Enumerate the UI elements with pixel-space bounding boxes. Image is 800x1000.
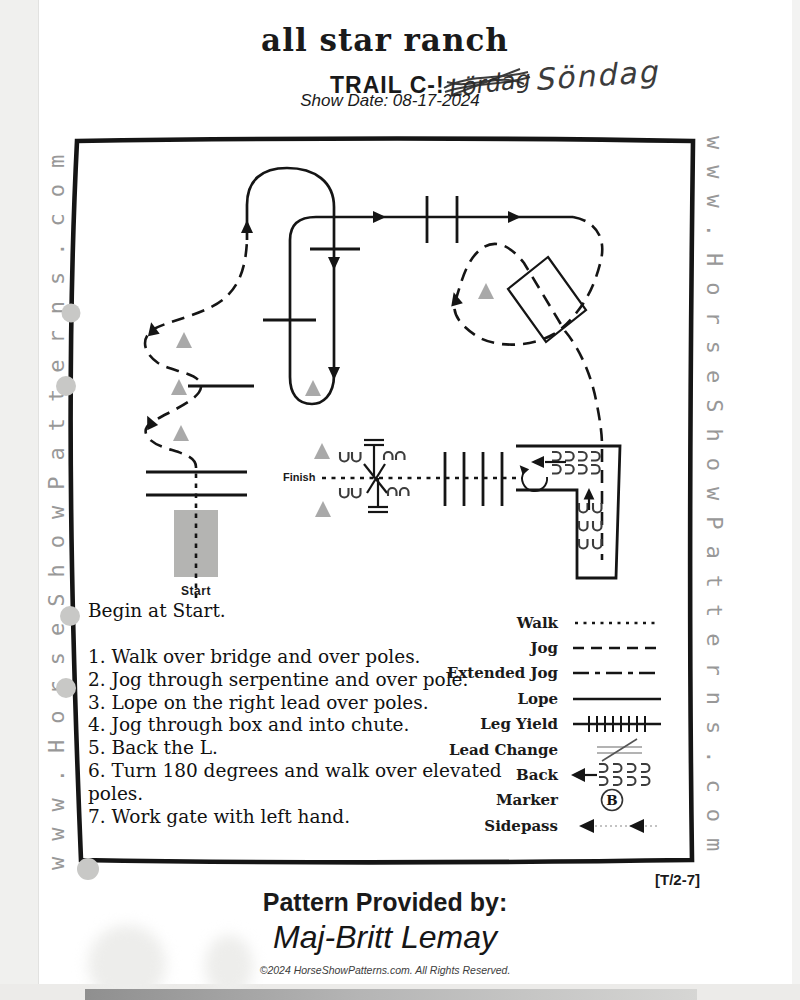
- course-diagram: [0, 0, 800, 1000]
- lead-change-slash-icon: [567, 738, 667, 762]
- turn-180-arrow: [522, 472, 547, 491]
- legend-row-extended-jog: Extended Jog: [438, 661, 668, 686]
- legend-row-marker: Marker B: [438, 788, 668, 813]
- back-up-arrow: [584, 488, 595, 500]
- pattern-code: [T/2-7]: [0, 871, 700, 888]
- show-date: Show Date: 08-17-2024: [0, 91, 780, 111]
- back-hoofprints-vertical: [579, 503, 602, 549]
- box-cone: [478, 283, 494, 299]
- start-label: Start: [170, 584, 222, 598]
- page-title: all star ranch: [0, 22, 770, 58]
- walk-dotted-line-icon: [567, 611, 667, 635]
- gate-obstacle: [364, 440, 388, 512]
- legend-label: Walk: [438, 614, 558, 632]
- finish-label: Finish: [283, 471, 315, 483]
- scribble-strikethrough: [440, 64, 535, 104]
- legend-label: Back: [438, 766, 558, 784]
- lope-path: [247, 168, 573, 404]
- marker-letter: B: [606, 792, 617, 808]
- legend-row-jog: Jog: [438, 635, 668, 660]
- loop-cone: [305, 380, 321, 396]
- serpentine-jog-path: [145, 240, 247, 467]
- gait-legend: Walk Jog Extended Jog Lope Leg Yield: [438, 610, 668, 839]
- sidepass-arrows-icon: [567, 814, 667, 838]
- copyright-notice: ©2024 HorseShowPatterns.com. All Rights …: [0, 964, 770, 976]
- provided-by-label: Pattern Provided by:: [0, 888, 770, 917]
- marker-circle-icon: B: [567, 788, 667, 812]
- turn-180-arrowhead: [516, 462, 529, 475]
- direction-arrows: [142, 211, 521, 430]
- back-hoofprints-icon: [567, 763, 667, 787]
- legend-label: Jog: [438, 639, 558, 657]
- legend-label: Extended Jog: [438, 664, 558, 682]
- legend-row-sidepass: Sidepass: [438, 813, 668, 838]
- legend-label: Lope: [438, 690, 558, 708]
- lope-solid-line-icon: [567, 687, 667, 711]
- leg-yield-hatched-line-icon: [567, 712, 667, 736]
- legend-row-back: Back: [438, 762, 668, 787]
- legend-row-lope: Lope: [438, 686, 668, 711]
- jog-box-path: [454, 217, 602, 560]
- extended-jog-dash-dot-line-icon: [567, 661, 667, 685]
- back-left-arrow: [531, 456, 544, 468]
- legend-label: Marker: [438, 791, 558, 809]
- legend-row-lead-change: Lead Change: [438, 737, 668, 762]
- legend-label: Leg Yield: [438, 715, 558, 733]
- legend-row-leg-yield: Leg Yield: [438, 712, 668, 737]
- legend-row-walk: Walk: [438, 610, 668, 635]
- lope-poles: [263, 196, 457, 320]
- legend-label: Sidepass: [438, 817, 558, 835]
- jog-dashed-line-icon: [567, 636, 667, 660]
- finish-cones: [314, 443, 331, 517]
- provided-by-name: Maj-Britt Lemay: [0, 919, 770, 956]
- legend-label: Lead Change: [438, 741, 558, 759]
